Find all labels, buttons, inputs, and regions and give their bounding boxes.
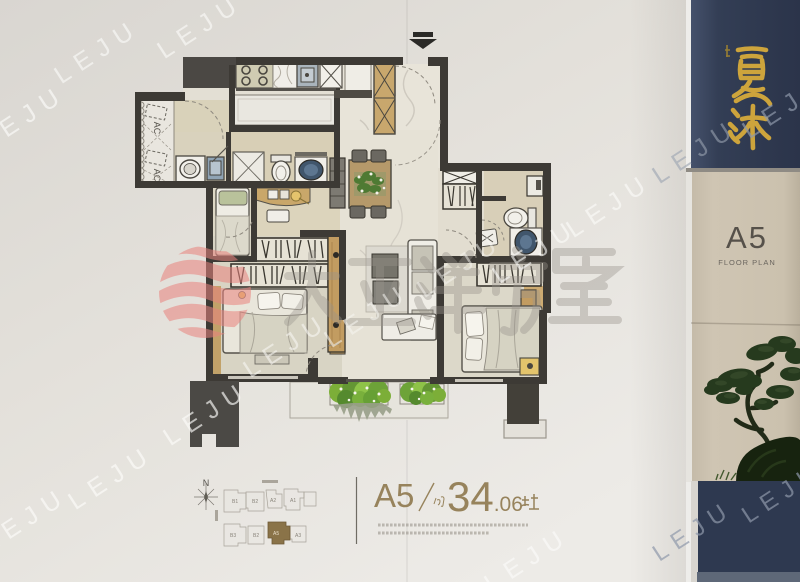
svg-text:A2: A2 — [270, 498, 276, 504]
svg-text:B2: B2 — [252, 499, 258, 505]
svg-text:A5: A5 — [374, 477, 414, 514]
svg-text:A5: A5 — [273, 531, 279, 537]
svg-text:A1: A1 — [290, 498, 296, 504]
svg-text:B3: B3 — [230, 533, 236, 539]
svg-text:A3: A3 — [295, 533, 301, 539]
svg-text:B2: B2 — [253, 533, 259, 539]
svg-text:A5: A5 — [726, 220, 768, 255]
svg-text:B1: B1 — [232, 499, 238, 505]
svg-text:FLOOR PLAN: FLOOR PLAN — [718, 258, 776, 267]
